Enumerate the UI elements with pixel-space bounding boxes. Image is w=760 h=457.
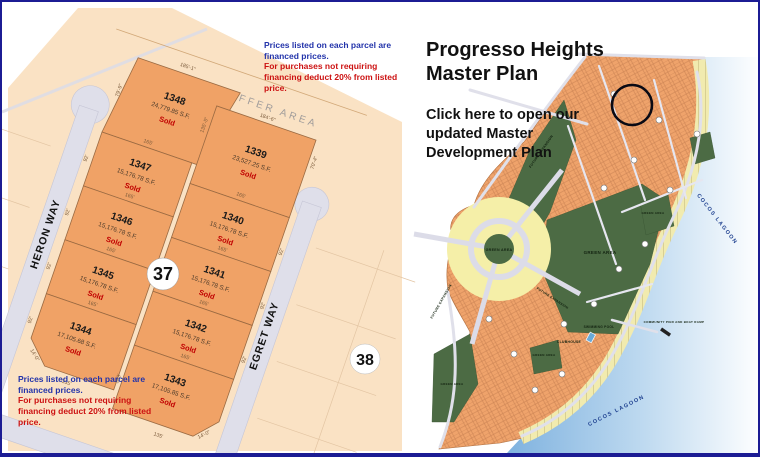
green-area-label: GREEN AREA <box>486 248 513 252</box>
green-area-label: GREEN AREA <box>584 250 617 255</box>
block-37-badge: 37 <box>147 258 179 290</box>
block-38-badge[interactable]: 38 <box>350 344 380 374</box>
site-page: BUFFER AREA 1348 24,779.85 S.F. Sold 134… <box>0 0 760 457</box>
block-38-number: 38 <box>356 352 374 369</box>
clubhouse-label: CLUBHOUSE <box>557 340 582 344</box>
green-area-label: GREEN AREA <box>642 211 665 215</box>
pricing-notice-discount: For purchases not requiring financing de… <box>264 61 397 92</box>
pricing-notice-financed: Prices listed on each parcel are finance… <box>264 40 391 61</box>
pier-label: COMMUNITY PIER AND BOAT RAMP <box>644 320 705 324</box>
master-plan-title-line2: Master Plan <box>426 62 604 86</box>
pricing-notice-financed: Prices listed on each parcel are finance… <box>18 374 145 395</box>
pricing-notice-discount: For purchases not requiring financing de… <box>18 395 151 426</box>
pricing-notice-bottom: Prices listed on each parcel are finance… <box>18 374 158 427</box>
block-37-number: 37 <box>153 264 173 284</box>
master-plan-title: Progresso Heights Master Plan <box>426 38 604 86</box>
green-area-label: GREEN AREA <box>441 382 464 386</box>
master-plan-link[interactable]: Click here to open our updated Master De… <box>426 106 596 163</box>
pricing-notice-top: Prices listed on each parcel are finance… <box>264 40 398 93</box>
green-area-label: GREEN AREA <box>533 353 556 357</box>
master-plan-title-line1: Progresso Heights <box>426 38 604 62</box>
pool-label: SWIMMING POOL <box>584 325 615 329</box>
